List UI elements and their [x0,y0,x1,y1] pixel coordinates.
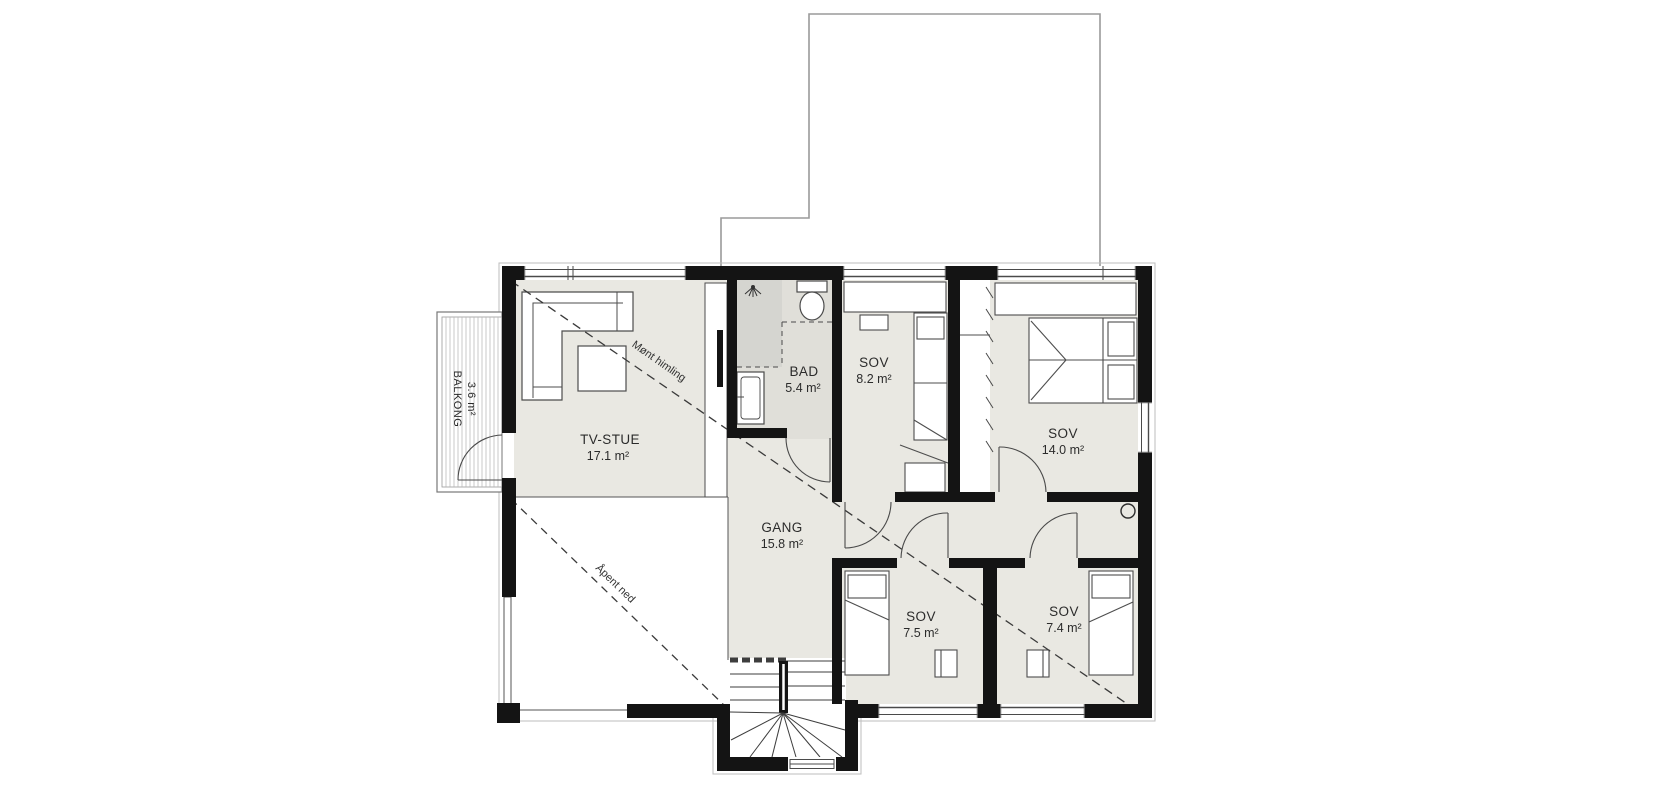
window-stairwell [788,757,836,771]
corner-post [497,703,520,723]
room-label-gang: GANG [761,520,802,535]
room-area-sov-8-2: 8.2 m² [856,372,891,386]
room-label-bad: BAD [790,364,819,379]
window-bedroom2 [997,266,1136,280]
media-wall [705,283,727,497]
window-bedroom4 [1000,704,1085,718]
closet [960,280,993,492]
room-area-balkong: 3.6 m² [465,382,477,416]
pillow [1108,322,1134,356]
pillow [1092,575,1130,598]
roof-outline [721,14,1100,266]
desk [905,463,945,492]
window-bedroom1 [843,266,946,280]
wardrobe-top [844,282,946,312]
pillow [848,575,886,598]
balcony: BALKONG 3.6 m² [437,312,502,492]
coffee-table [578,346,626,391]
room-label-sov-14-0: SOV [1048,426,1078,441]
desk [1027,650,1049,677]
window-bedroom2-side [1138,402,1152,453]
room-label-sov-8-2: SOV [859,355,889,370]
window-living [524,266,686,280]
room-area-sov-14-0: 14.0 m² [1042,443,1084,457]
room-area-sov-7-5: 7.5 m² [903,626,938,640]
desk [935,650,957,677]
wardrobe-top [995,283,1136,315]
stool [860,315,888,330]
room-label-sov-7-4: SOV [1049,604,1079,619]
floor-plan-drawing: BALKONG 3.6 m² [0,0,1670,800]
room-area-gang: 15.8 m² [761,537,803,551]
room-label-tv-stue: TV-STUE [580,432,640,447]
floor-plan-page: BALKONG 3.6 m² [0,0,1670,800]
pillow [1108,365,1134,399]
tv [717,330,723,387]
room-area-bad: 5.4 m² [785,381,820,395]
room-label-balkong: BALKONG [451,371,463,428]
room-area-sov-7-4: 7.4 m² [1046,621,1081,635]
room-area-tv-stue: 17.1 m² [587,449,629,463]
sink [737,372,764,424]
window-bedroom3 [878,704,978,718]
room-label-sov-7-5: SOV [906,609,936,624]
pillow [917,317,944,339]
